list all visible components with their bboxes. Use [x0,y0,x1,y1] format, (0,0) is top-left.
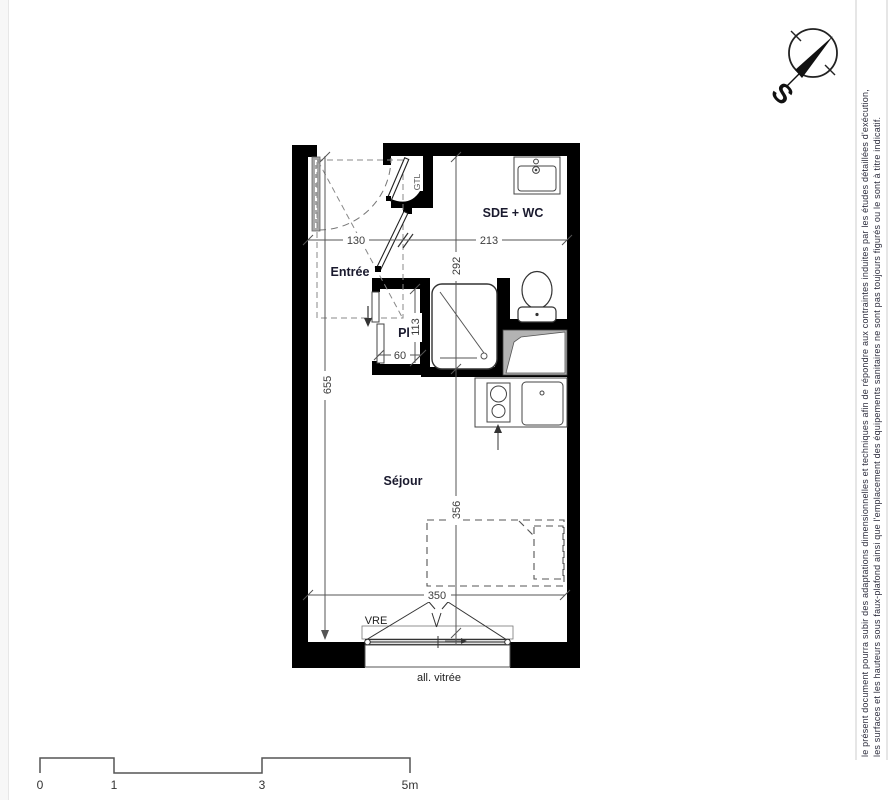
scale-3: 3 [259,778,266,792]
technical-duct [503,330,567,375]
window-label-allege: all. vitrée [417,672,461,684]
room-label-placard: Pl [398,326,410,340]
dim-350: 350 [428,590,446,602]
kitchen-sink [522,382,563,425]
dim-130: 130 [347,235,365,247]
sde-door-leaf [376,211,408,271]
room-label-gtl: GTL [412,173,422,190]
window-label-vre: VRE [365,615,388,627]
room-label-sde-wc: SDE + WC [483,206,544,220]
scale-0: 0 [37,778,44,792]
dim-113: 113 [410,318,422,336]
room-label-sejour: Séjour [384,474,423,488]
floor-plan-drawing: 130 213 292 655 113 60 356 350 Entrée SD… [0,0,890,800]
disclaimer-line-1: le présent document pourra subir des ada… [860,89,870,757]
kitchenette [475,378,567,450]
down-arrow [364,318,372,327]
dim-292: 292 [451,257,463,275]
compass-icon: S [765,29,837,111]
dim-213: 213 [480,235,498,247]
page-left-margin [0,0,8,800]
bed-dashed [427,520,564,586]
compass-south-label: S [765,77,799,111]
scale-5m: 5m [402,778,419,792]
disclaimer-block: le présent document pourra subir des ada… [856,0,887,760]
toilet [518,272,556,323]
shower-tray [432,284,497,369]
floor-plan-page: 130 213 292 655 113 60 356 350 Entrée SD… [0,0,890,800]
scale-1: 1 [111,778,118,792]
entry-door-leaf-open [312,157,320,231]
dim-655: 655 [322,376,334,394]
washbasin [514,157,560,194]
dim-60: 60 [394,350,406,362]
entry-door-swing-arc [319,158,391,230]
disclaimer-line-2: les surfaces et les hauteurs sous faux-p… [872,117,882,757]
dim-356: 356 [451,501,463,519]
window-bay [362,602,513,667]
scale-bar: 0 1 3 5m [37,758,419,792]
glazed-sill [365,645,510,667]
room-label-entree: Entrée [331,265,370,279]
